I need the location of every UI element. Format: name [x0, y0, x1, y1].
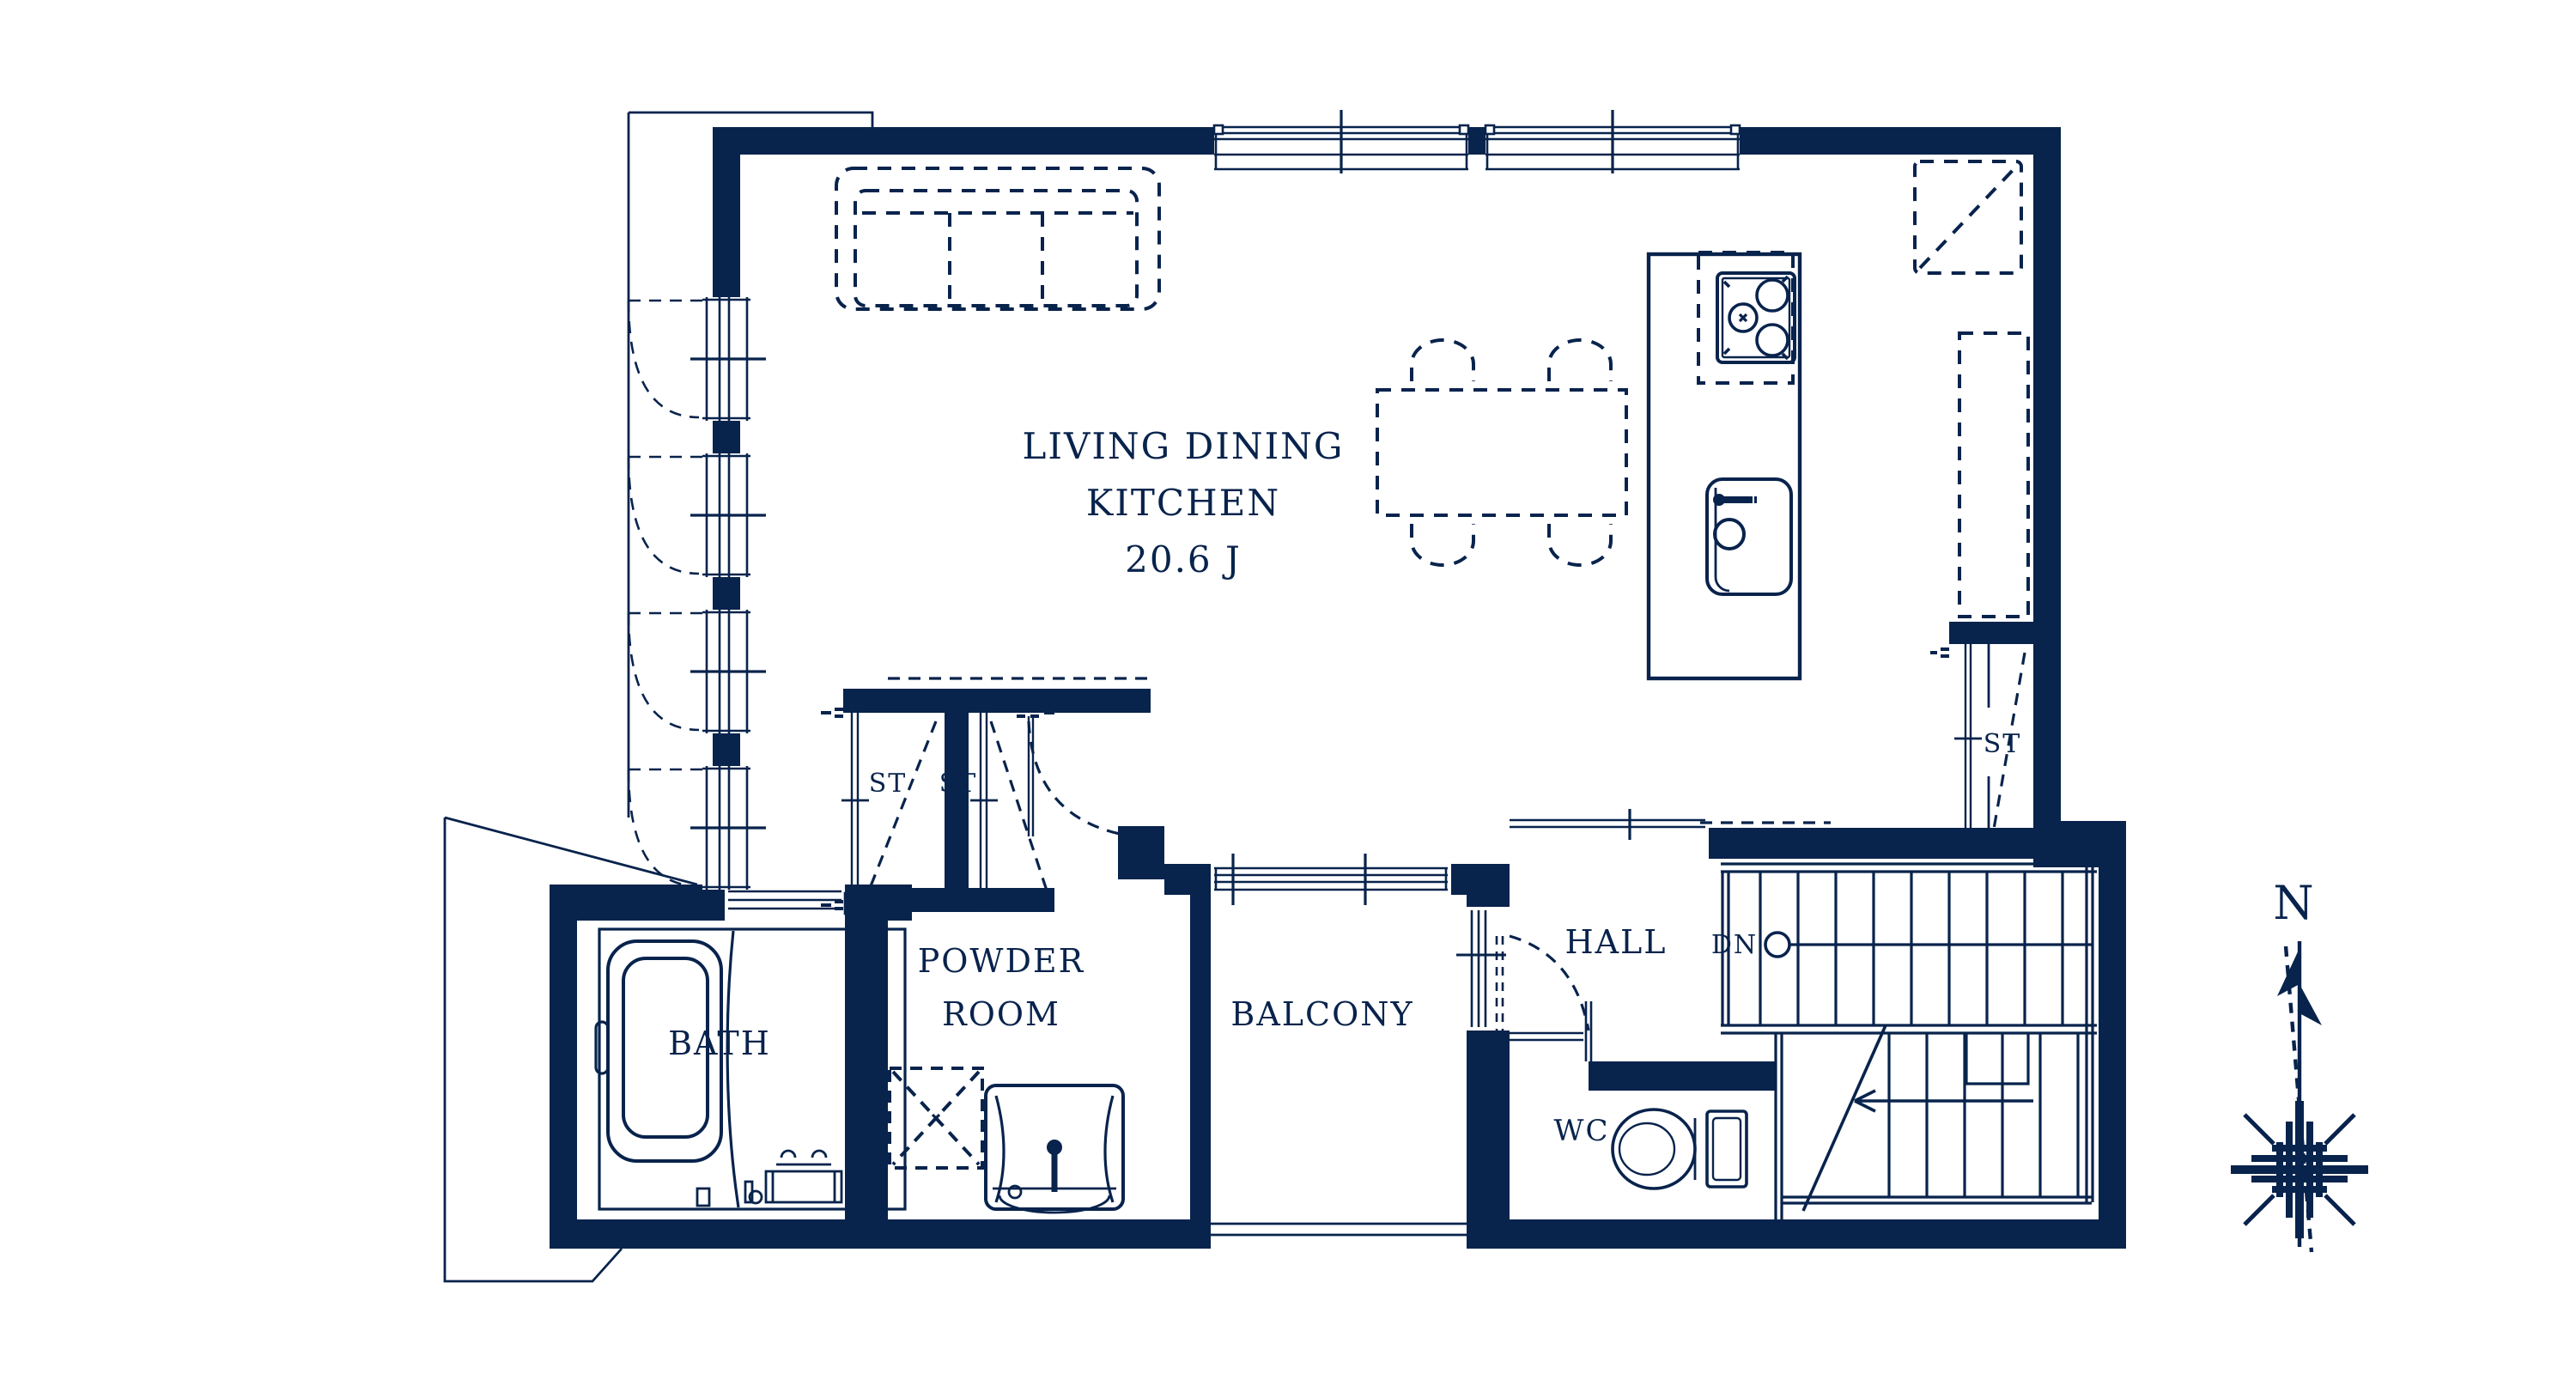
shower-fixture-icon — [697, 1151, 841, 1206]
dining-table-icon — [1377, 340, 1626, 565]
toilet-icon — [1613, 1110, 1747, 1189]
ldk-label-line1: LIVING DINING — [1023, 425, 1345, 467]
door-swing-icon — [1029, 716, 1147, 838]
st-left2-label: ST — [939, 769, 978, 799]
chair-icon — [1549, 524, 1611, 565]
eave-outline — [445, 112, 872, 1281]
stairs-icon — [1721, 864, 2097, 1219]
bath-label: BATH — [668, 1024, 771, 1062]
chair-icon — [1549, 340, 1611, 381]
sink-icon — [1707, 479, 1791, 594]
floor-plan: LIVING DINING KITCHEN 20.6 J POWDER ROOM… — [0, 0, 2576, 1374]
chair-icon — [1412, 524, 1473, 565]
kitchen-island-icon — [1649, 252, 1800, 678]
compass-north-label: N — [2273, 876, 2315, 930]
st-right-label: ST — [1984, 729, 2022, 759]
vanity-sink-icon — [986, 1085, 1123, 1213]
balcony-label: BALCONY — [1230, 995, 1413, 1033]
wc-label: WC — [1554, 1114, 1610, 1148]
dn-label: DN — [1711, 930, 1758, 960]
powder-room-label-line1: POWDER — [918, 942, 1085, 980]
washer-space-icon — [890, 1068, 982, 1168]
sofa-icon — [836, 168, 1159, 309]
hall-label: HALL — [1564, 923, 1667, 961]
pantry-space-icon — [1959, 333, 2028, 617]
ldk-area-label: 20.6 J — [1125, 538, 1242, 581]
ldk-label-line2: KITCHEN — [1086, 482, 1280, 524]
fridge-space-icon — [1915, 161, 2021, 273]
st-left1-label: ST — [869, 769, 908, 799]
stove-icon — [1698, 252, 1795, 383]
wc-room — [1586, 1001, 1747, 1189]
chair-icon — [1412, 340, 1473, 381]
compass-icon — [2231, 941, 2368, 1252]
powder-room-label-line2: ROOM — [942, 995, 1060, 1033]
